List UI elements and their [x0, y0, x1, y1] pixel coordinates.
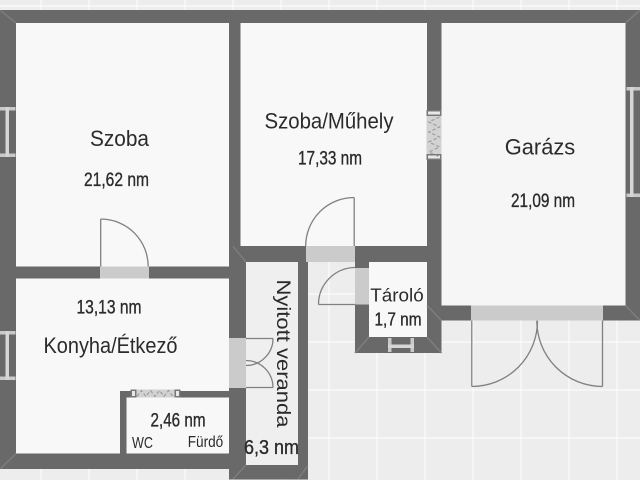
svg-text:Fürdő: Fürdő	[188, 434, 224, 451]
svg-text:2,46 nm: 2,46 nm	[151, 411, 206, 432]
svg-text:Konyha/Étkező: Konyha/Étkező	[44, 333, 178, 358]
svg-text:21,62 nm: 21,62 nm	[84, 170, 149, 191]
svg-text:WC: WC	[132, 435, 153, 452]
svg-text:21,09 nm: 21,09 nm	[511, 191, 575, 212]
svg-text:1,7 nm: 1,7 nm	[375, 310, 422, 330]
svg-text:13,13 nm: 13,13 nm	[77, 298, 142, 319]
svg-text:6,3 nm: 6,3 nm	[244, 437, 299, 459]
svg-text:Nyitott veranda: Nyitott veranda	[272, 280, 293, 428]
svg-text:Garázs: Garázs	[505, 135, 576, 160]
svg-text:Szoba: Szoba	[90, 126, 150, 151]
svg-text:Tároló: Tároló	[370, 285, 424, 306]
svg-text:Szoba/Műhely: Szoba/Műhely	[265, 109, 394, 134]
svg-text:17,33 nm: 17,33 nm	[298, 149, 362, 170]
